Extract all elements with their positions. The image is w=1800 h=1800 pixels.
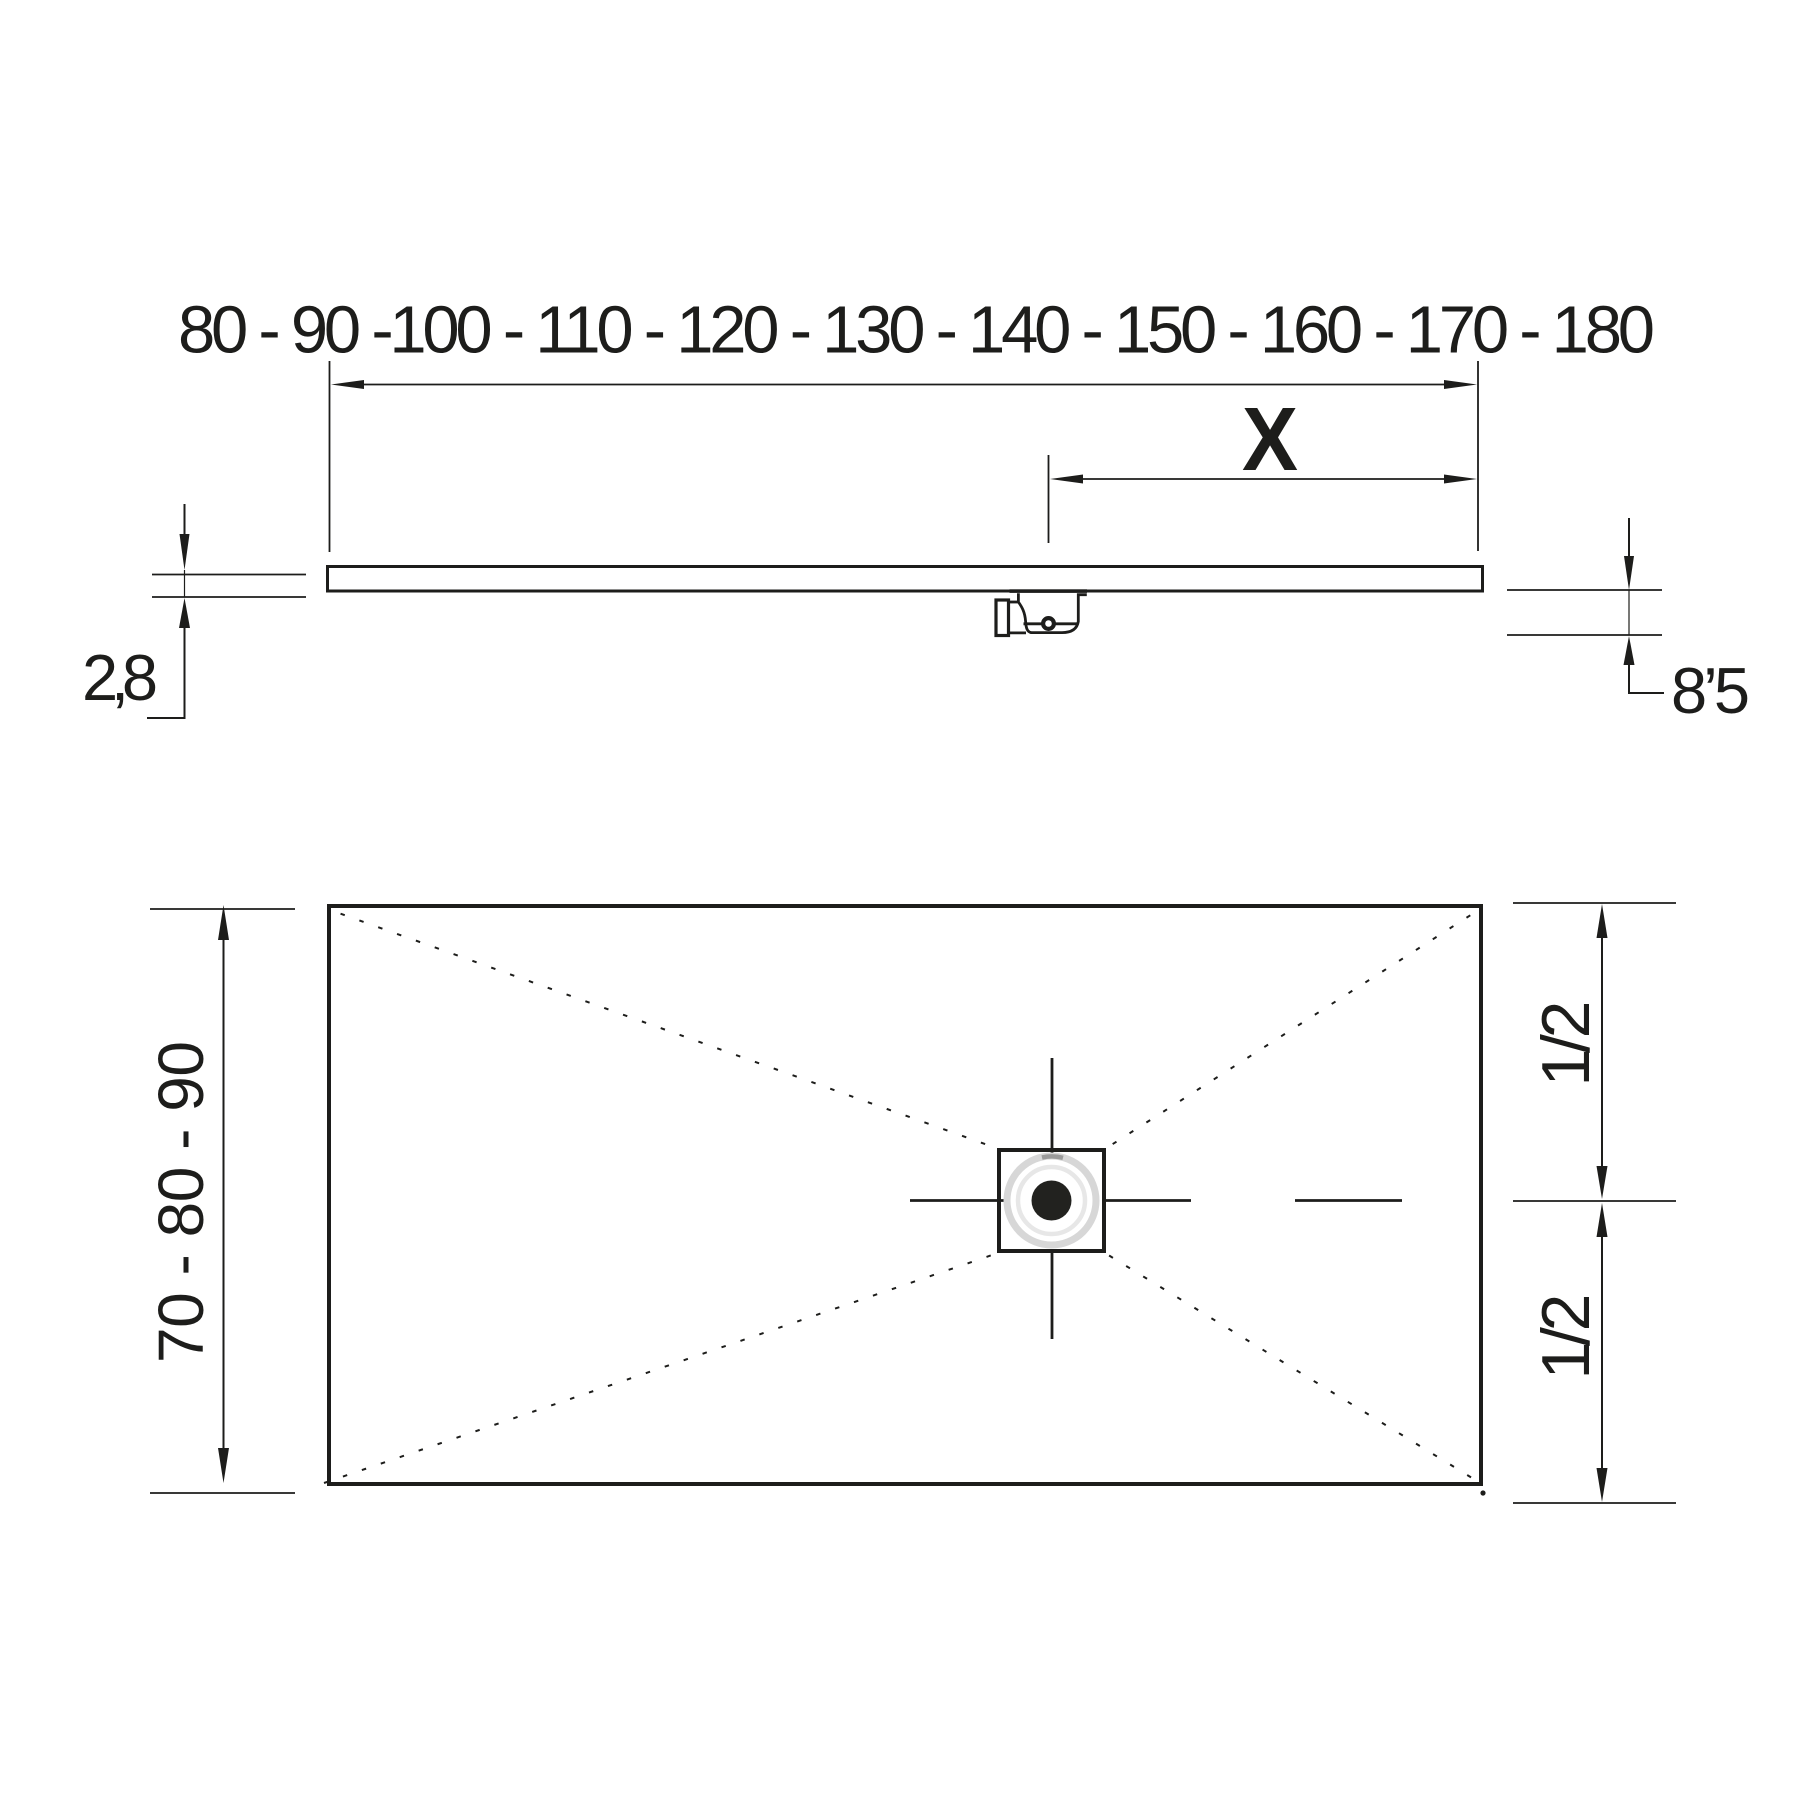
svg-text:80 - 90 -100 - 110 - 120 - 130: 80 - 90 -100 - 110 - 120 - 130 - 140 - 1… — [178, 293, 1655, 368]
svg-text:2,8: 2,8 — [82, 641, 158, 714]
svg-text:X: X — [1242, 390, 1298, 490]
svg-text:8’5: 8’5 — [1671, 654, 1750, 727]
svg-text:70 - 80 - 90: 70 - 80 - 90 — [145, 1041, 217, 1363]
svg-text:1/2: 1/2 — [1528, 1294, 1604, 1380]
svg-text:1/2: 1/2 — [1528, 1001, 1604, 1087]
